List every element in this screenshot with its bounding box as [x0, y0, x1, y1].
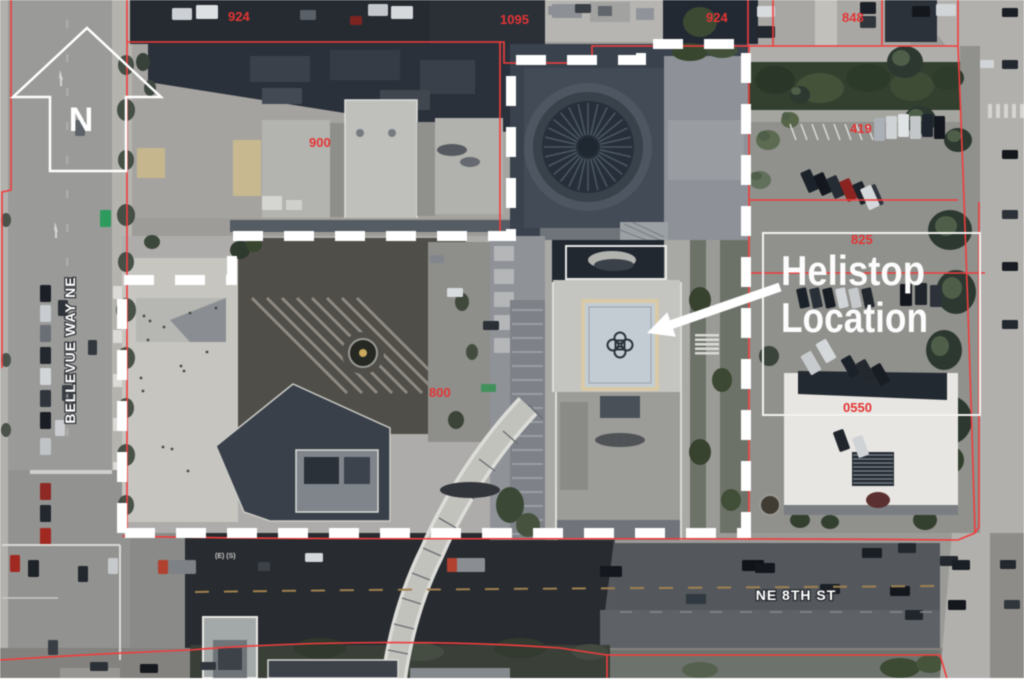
svg-text:Location: Location [781, 294, 928, 341]
svg-text:N: N [69, 101, 94, 139]
svg-text:BELLEVUE WAY NE: BELLEVUE WAY NE [62, 276, 78, 423]
svg-text:924: 924 [228, 9, 250, 24]
svg-text:900: 900 [309, 135, 331, 150]
svg-text:419: 419 [850, 121, 872, 136]
svg-text:825: 825 [851, 232, 873, 247]
svg-text:NE 8TH ST: NE 8TH ST [756, 587, 837, 603]
svg-text:848: 848 [842, 10, 864, 25]
svg-text:(E) (S): (E) (S) [215, 553, 236, 560]
svg-text:Helistop: Helistop [781, 247, 925, 294]
svg-text:1095: 1095 [500, 12, 529, 27]
svg-text:800: 800 [429, 385, 451, 400]
svg-text:0550: 0550 [843, 400, 872, 415]
svg-text:924: 924 [706, 10, 728, 25]
